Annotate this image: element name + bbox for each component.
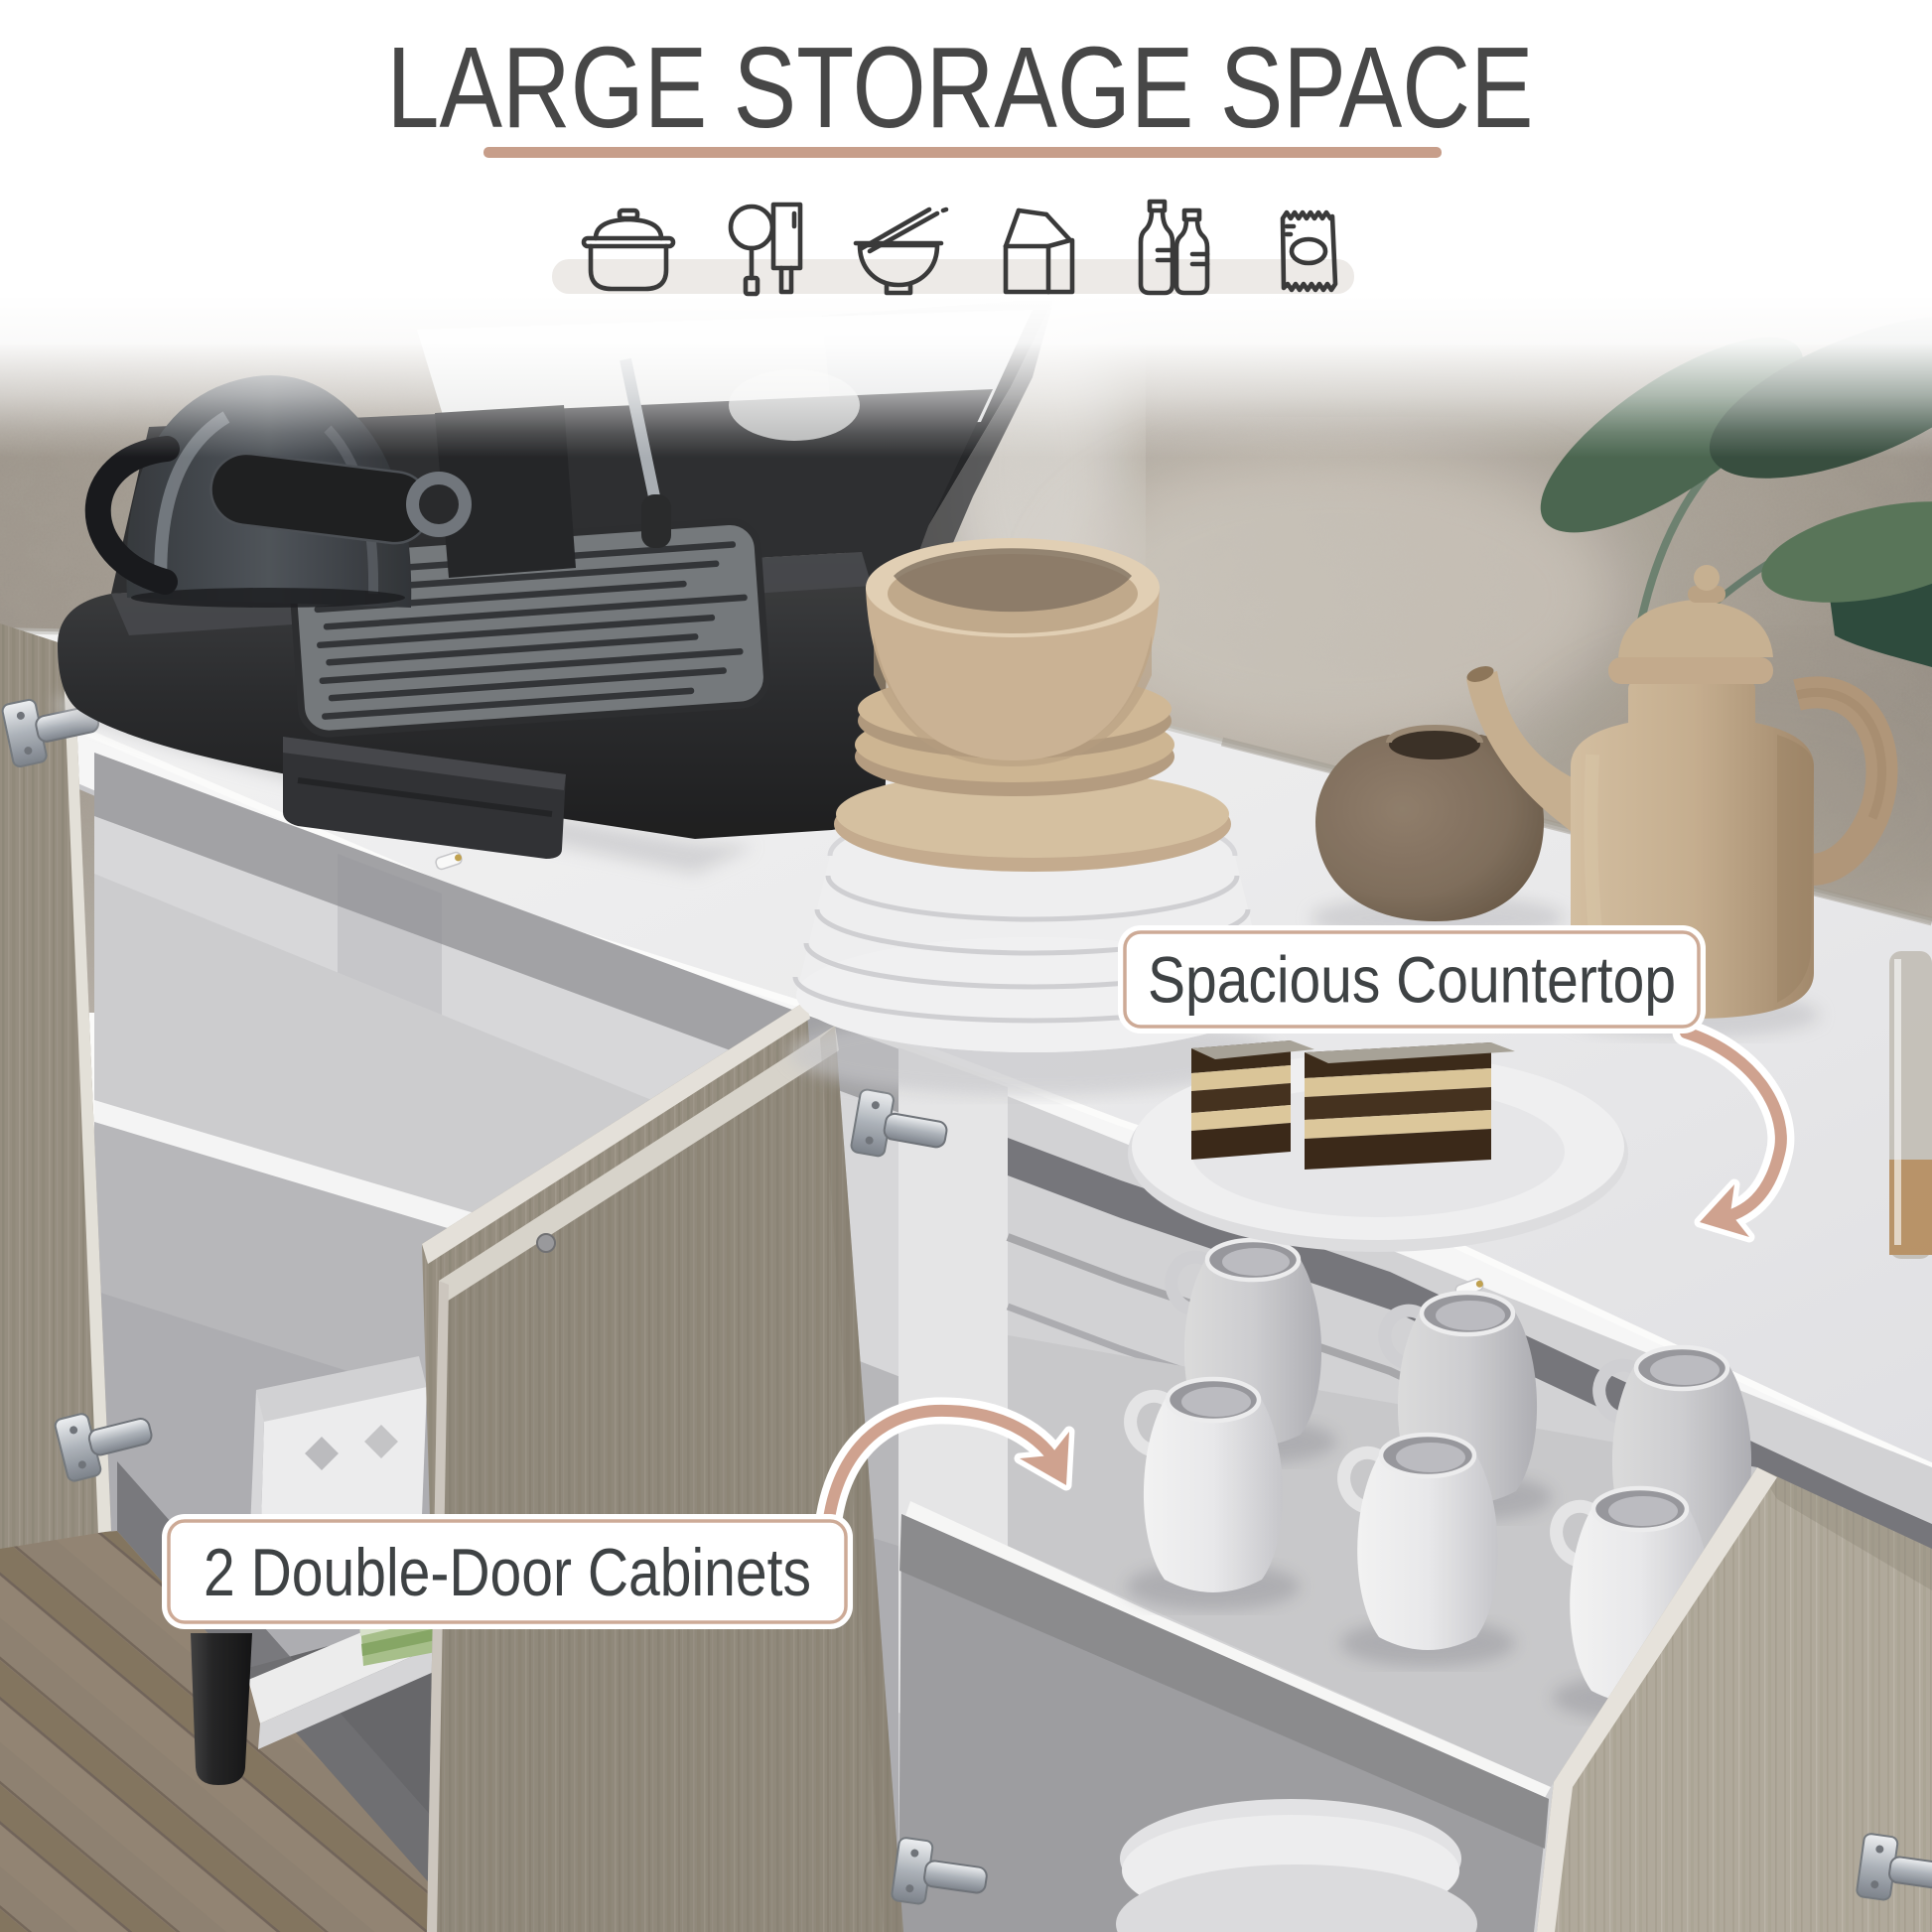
svg-text:LARGE STORAGE SPACE: LARGE STORAGE SPACE	[387, 23, 1534, 152]
svg-text:Spacious Countertop: Spacious Countertop	[1148, 943, 1676, 1017]
svg-text:2 Double-Door Cabinets: 2 Double-Door Cabinets	[204, 1535, 811, 1610]
